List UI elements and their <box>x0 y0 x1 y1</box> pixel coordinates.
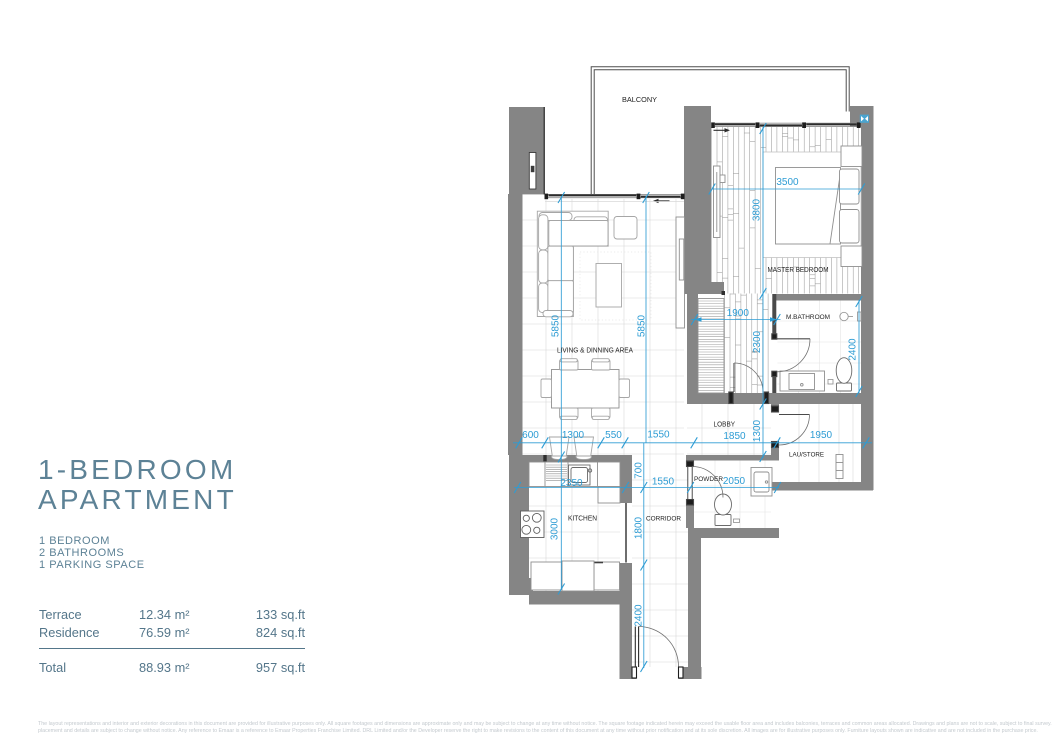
svg-text:1550: 1550 <box>647 429 670 440</box>
svg-text:1900: 1900 <box>727 308 750 319</box>
svg-text:2050: 2050 <box>723 476 746 487</box>
svg-text:POWDER: POWDER <box>694 476 723 483</box>
svg-text:LOBBY: LOBBY <box>714 421 736 428</box>
svg-text:2400: 2400 <box>848 338 859 361</box>
svg-text:3800: 3800 <box>752 198 763 221</box>
svg-text:1850: 1850 <box>723 431 746 442</box>
svg-text:1950: 1950 <box>810 430 833 441</box>
svg-text:1550: 1550 <box>652 477 675 488</box>
svg-text:CORRIDOR: CORRIDOR <box>646 516 681 523</box>
svg-text:5850: 5850 <box>637 314 648 337</box>
svg-text:LIVING & DINNING AREA: LIVING & DINNING AREA <box>557 348 633 355</box>
svg-text:3500: 3500 <box>776 177 799 188</box>
svg-text:2300: 2300 <box>752 330 763 353</box>
svg-text:2350: 2350 <box>560 478 583 489</box>
svg-text:MASTER BEDROOM: MASTER BEDROOM <box>768 267 829 274</box>
svg-text:700: 700 <box>634 462 645 479</box>
svg-text:KITCHEN: KITCHEN <box>568 516 597 523</box>
svg-text:LAU/STORE: LAU/STORE <box>789 452 825 459</box>
svg-text:600: 600 <box>522 430 539 441</box>
svg-text:5850: 5850 <box>551 314 562 337</box>
svg-text:1300: 1300 <box>752 419 763 442</box>
svg-text:3000: 3000 <box>550 517 561 540</box>
svg-text:M.BATHROOM: M.BATHROOM <box>786 314 830 321</box>
svg-text:1800: 1800 <box>634 516 645 539</box>
svg-text:BALCONY: BALCONY <box>622 95 657 104</box>
svg-text:550: 550 <box>605 430 622 441</box>
svg-text:2400: 2400 <box>634 604 645 627</box>
svg-text:1300: 1300 <box>562 430 585 441</box>
